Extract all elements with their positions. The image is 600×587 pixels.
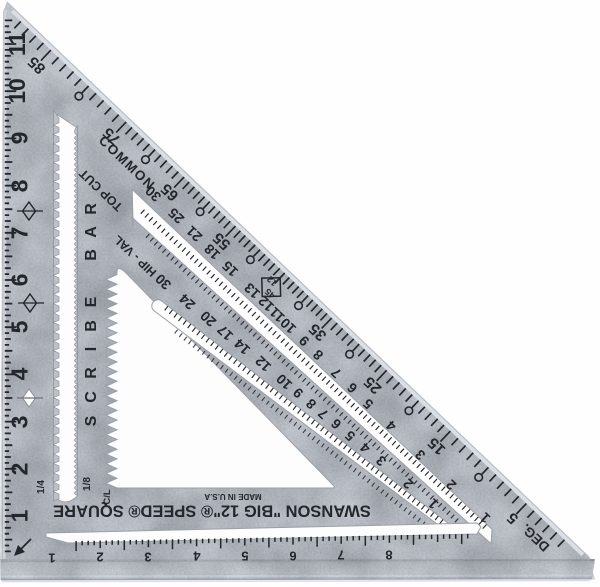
svg-text:R: R: [83, 367, 100, 379]
svg-text:R: R: [83, 203, 100, 215]
svg-text:3: 3: [144, 550, 151, 565]
svg-text:1: 1: [7, 509, 33, 522]
svg-text:1/8: 1/8: [82, 477, 93, 491]
svg-text:4: 4: [7, 367, 33, 380]
svg-text:11: 11: [4, 32, 30, 57]
svg-text:9: 9: [7, 132, 33, 145]
svg-text:S: S: [83, 415, 100, 426]
svg-text:MADE IN U.S.A: MADE IN U.S.A: [204, 492, 262, 501]
svg-text:8: 8: [7, 179, 33, 192]
svg-text:1/4: 1/4: [36, 480, 47, 494]
svg-text:8: 8: [385, 548, 392, 563]
svg-text:SWANSON "BIG 12"® SPEED® SQUAR: SWANSON "BIG 12"® SPEED® SQUARE: [53, 502, 371, 520]
svg-text:4: 4: [193, 549, 201, 564]
svg-text:6: 6: [7, 274, 33, 287]
svg-text:6: 6: [289, 549, 296, 564]
svg-text:5: 5: [7, 320, 33, 333]
svg-text:2: 2: [96, 550, 103, 565]
svg-text:7: 7: [7, 227, 33, 240]
svg-text:C: C: [83, 391, 100, 403]
svg-text:1: 1: [48, 551, 55, 566]
svg-text:5: 5: [241, 549, 248, 564]
svg-text:7: 7: [337, 548, 344, 563]
svg-text:B: B: [83, 249, 100, 261]
svg-text:3: 3: [7, 416, 33, 429]
svg-text:I: I: [83, 347, 100, 351]
svg-text:B: B: [83, 320, 100, 332]
svg-text:10: 10: [4, 78, 30, 104]
svg-text:E: E: [83, 296, 100, 307]
svg-text:2: 2: [7, 463, 33, 476]
svg-text:A: A: [83, 226, 100, 238]
